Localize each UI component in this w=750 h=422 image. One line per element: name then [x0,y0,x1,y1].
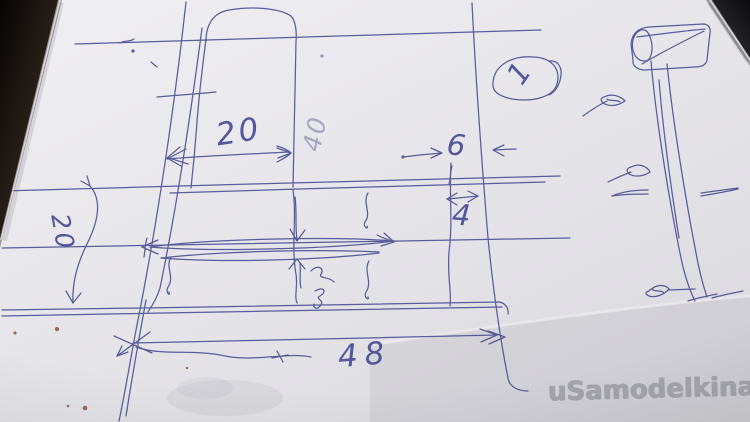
part-callout-circle [493,57,561,100]
dirt-specks [13,327,188,410]
construction-lines [2,30,570,316]
sketch-drawing-svg [0,0,750,422]
side-view-strokes [583,24,743,301]
paper-shading [2,2,750,422]
photo-of-hand-drawn-sketch: 20 40 6 4 48 20 1 uSamodelkina.ru [0,0,750,422]
